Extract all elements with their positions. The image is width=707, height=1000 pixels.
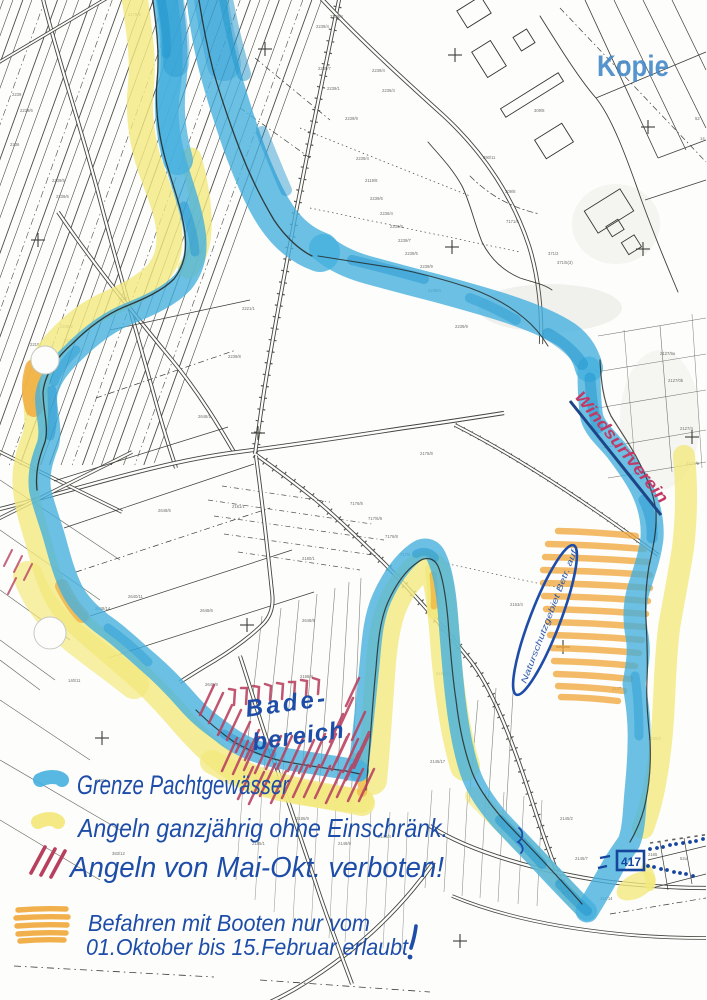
svg-text:2239/1: 2239/1 bbox=[327, 86, 340, 91]
svg-text:2239/8: 2239/8 bbox=[228, 354, 241, 359]
svg-text:2236/4: 2236/4 bbox=[382, 88, 395, 93]
svg-text:Grenze Pachtgewässer: Grenze Pachtgewässer bbox=[77, 770, 290, 800]
svg-text:2180/1: 2180/1 bbox=[302, 556, 315, 561]
svg-text:2239/6: 2239/6 bbox=[370, 196, 383, 201]
svg-text:371/5(3): 371/5(3) bbox=[557, 260, 573, 265]
svg-text:01.Oktober bis 15.Februar erla: 01.Oktober bis 15.Februar erlaubt bbox=[86, 934, 409, 960]
svg-text:2239/4: 2239/4 bbox=[356, 156, 369, 161]
svg-text:2181/1: 2181/1 bbox=[232, 504, 245, 509]
svg-text:7176/8: 7176/8 bbox=[350, 501, 363, 506]
svg-text:2239/5: 2239/5 bbox=[405, 251, 418, 256]
svg-text:2119/8: 2119/8 bbox=[365, 178, 378, 183]
svg-text:2145/2: 2145/2 bbox=[560, 816, 573, 821]
svg-text:2165: 2165 bbox=[648, 852, 658, 857]
svg-text:52: 52 bbox=[695, 116, 700, 121]
svg-text:2640/9: 2640/9 bbox=[205, 682, 218, 687]
svg-text:2127/4: 2127/4 bbox=[680, 426, 693, 431]
svg-text:2648/6: 2648/6 bbox=[200, 608, 213, 613]
svg-text:417: 417 bbox=[621, 855, 641, 869]
svg-text:2221/1: 2221/1 bbox=[242, 306, 255, 311]
svg-text:2168/8: 2168/8 bbox=[300, 674, 313, 679]
svg-text:Angeln von Mai-Okt. verboten!: Angeln von Mai-Okt. verboten! bbox=[68, 852, 444, 884]
svg-text:2648/8: 2648/8 bbox=[302, 618, 315, 623]
svg-text:2175/8: 2175/8 bbox=[420, 451, 433, 456]
svg-text:2239/9: 2239/9 bbox=[455, 324, 468, 329]
svg-text:371/2: 371/2 bbox=[548, 251, 559, 256]
svg-text:14: 14 bbox=[700, 136, 705, 141]
svg-text:2239/4: 2239/4 bbox=[372, 68, 385, 73]
svg-text:2648/6: 2648/6 bbox=[158, 508, 171, 513]
svg-text:2236/4: 2236/4 bbox=[380, 211, 393, 216]
svg-text:2239: 2239 bbox=[12, 92, 22, 97]
svg-text:390/11: 390/11 bbox=[483, 155, 496, 160]
svg-text:2239/4: 2239/4 bbox=[330, 14, 343, 19]
svg-text:2239/7: 2239/7 bbox=[398, 238, 411, 243]
svg-text:2239/9: 2239/9 bbox=[420, 264, 433, 269]
svg-text:52u: 52u bbox=[680, 856, 688, 861]
svg-text:2127/0b: 2127/0b bbox=[668, 378, 684, 383]
svg-text:2236: 2236 bbox=[10, 142, 20, 147]
svg-text:2239/6: 2239/6 bbox=[56, 194, 69, 199]
svg-text:2239/7: 2239/7 bbox=[318, 66, 331, 71]
svg-text:309/8: 309/8 bbox=[505, 189, 516, 194]
svg-text:7176/8: 7176/8 bbox=[385, 534, 398, 539]
svg-text:2145/17: 2145/17 bbox=[430, 759, 446, 764]
svg-text:Befahren mit Booten nur vom: Befahren mit Booten nur vom bbox=[88, 910, 370, 936]
svg-text:Kopie: Kopie bbox=[597, 50, 669, 83]
svg-text:309/8: 309/8 bbox=[534, 108, 545, 113]
svg-text:2239/4: 2239/4 bbox=[316, 24, 329, 29]
svg-text:7171/5: 7171/5 bbox=[506, 219, 519, 224]
svg-text:2145/7: 2145/7 bbox=[575, 856, 588, 861]
svg-text:2239/9: 2239/9 bbox=[345, 116, 358, 121]
svg-text:2239/6: 2239/6 bbox=[20, 108, 33, 113]
svg-text:2239/8: 2239/8 bbox=[390, 224, 403, 229]
svg-text:717/6/8: 717/6/8 bbox=[368, 516, 383, 521]
svg-text:2127/9a: 2127/9a bbox=[660, 351, 676, 356]
svg-text:2640/11: 2640/11 bbox=[128, 594, 143, 599]
svg-text:2648/1: 2648/1 bbox=[198, 414, 211, 419]
svg-text:140/11: 140/11 bbox=[68, 678, 81, 683]
svg-text:Angeln ganzjährig ohne Einschr: Angeln ganzjährig ohne Einschränk. bbox=[76, 813, 448, 843]
svg-text:2239/5: 2239/5 bbox=[52, 178, 65, 183]
svg-text:2153/4: 2153/4 bbox=[510, 602, 523, 607]
